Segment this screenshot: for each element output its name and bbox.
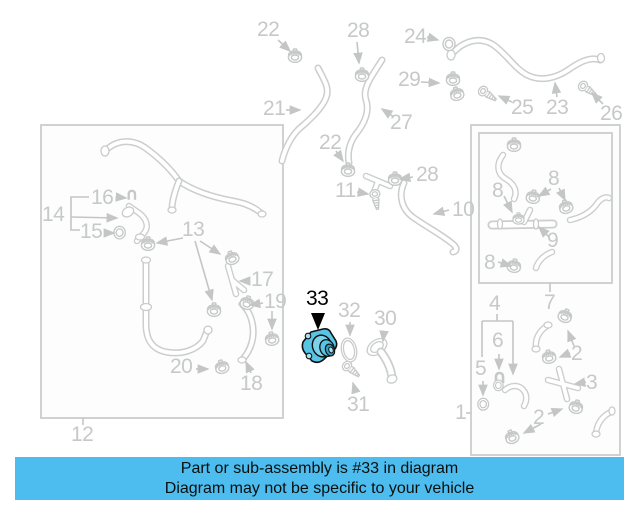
callout-27: 27 xyxy=(390,112,412,133)
callout-4: 4 xyxy=(489,293,500,314)
callout-2-b: 2 xyxy=(533,407,544,428)
bolt-icon xyxy=(340,359,362,379)
banner-line-2: Diagram may not be specific to your vehi… xyxy=(165,479,474,499)
callout-12: 12 xyxy=(71,424,93,445)
bolt-icon xyxy=(477,84,499,104)
ring-icon xyxy=(443,37,455,50)
callout-22-mid: 22 xyxy=(319,132,341,153)
callout-21: 21 xyxy=(263,98,285,119)
banner-line-1: Part or sub-assembly is #33 in diagram xyxy=(181,459,458,479)
callout-30: 30 xyxy=(374,308,396,329)
callout-31: 31 xyxy=(347,394,369,415)
callout-11: 11 xyxy=(335,180,356,201)
callout-8-c: 8 xyxy=(484,252,495,273)
clamp-icon xyxy=(355,68,368,81)
selection-banner: Part or sub-assembly is #33 in diagram D… xyxy=(15,457,624,500)
clamp-icon xyxy=(341,163,354,176)
callout-24: 24 xyxy=(404,26,426,47)
callout-29: 29 xyxy=(398,69,420,90)
callout-22-top: 22 xyxy=(257,19,279,40)
callout-33-highlighted[interactable]: 33 xyxy=(306,288,328,309)
callout-3: 3 xyxy=(586,372,597,393)
callout-18: 18 xyxy=(240,373,262,394)
callout-1: 1 xyxy=(455,402,466,423)
callout-28-mid: 28 xyxy=(416,164,438,185)
callout-5: 5 xyxy=(475,358,486,379)
callout-9: 9 xyxy=(547,230,558,251)
callout-28-top: 28 xyxy=(347,20,369,41)
callout-17: 17 xyxy=(251,269,273,290)
clamp-icon xyxy=(288,49,301,62)
callout-16: 16 xyxy=(91,187,113,208)
callout-8-b: 8 xyxy=(492,180,503,201)
callout-20: 20 xyxy=(170,356,192,377)
callout-8-a: 8 xyxy=(548,168,559,189)
clamp-icon xyxy=(446,72,459,85)
highlighted-part-33[interactable] xyxy=(302,329,336,362)
ring-icon xyxy=(494,380,504,391)
callout-26: 26 xyxy=(600,103,622,124)
clamp-icon xyxy=(449,86,465,102)
group-center-parts xyxy=(339,335,398,385)
ring-icon xyxy=(114,226,125,239)
callout-2-a: 2 xyxy=(571,343,582,364)
callout-19: 19 xyxy=(264,291,286,312)
callout-25: 25 xyxy=(511,97,533,118)
callout-10: 10 xyxy=(452,199,474,220)
callout-15: 15 xyxy=(80,221,102,242)
parts-diagram-page: 22 28 24 29 21 25 23 26 27 22 28 11 10 1… xyxy=(0,0,640,512)
callout-13: 13 xyxy=(182,219,204,240)
ring-icon xyxy=(478,398,489,410)
parts-diagram-drawing xyxy=(0,0,640,512)
callout-23: 23 xyxy=(546,97,568,118)
callout-14: 14 xyxy=(42,204,64,225)
callout-6: 6 xyxy=(492,330,503,351)
callout-32: 32 xyxy=(338,300,360,321)
clamp-icon xyxy=(388,172,401,185)
callout-7: 7 xyxy=(544,292,555,313)
bolt-icon xyxy=(369,189,382,210)
